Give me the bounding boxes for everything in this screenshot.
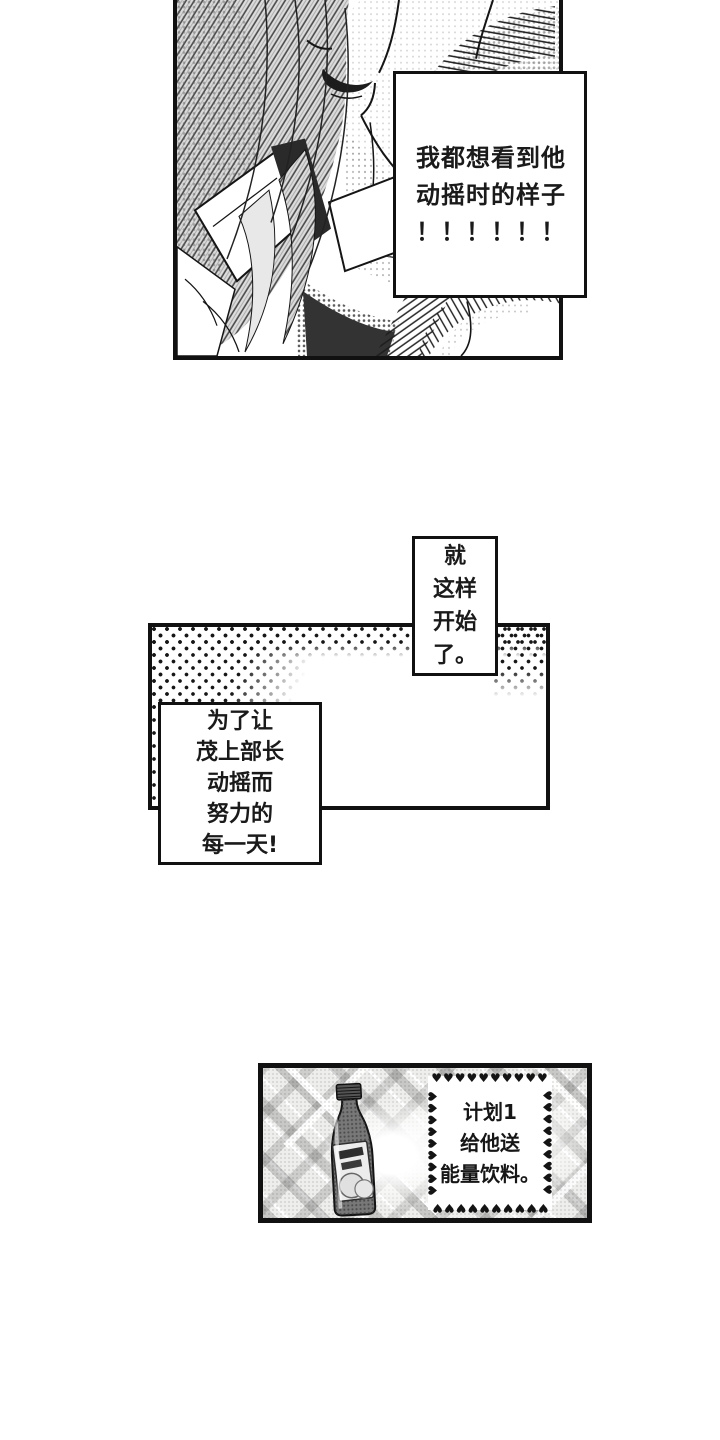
bottle-illustration [315, 1080, 388, 1223]
thought-line: 动摇时的样子 [416, 177, 584, 214]
thought-box: 我都想看到他 动摇时的样子 ！！！！！！ [393, 71, 587, 298]
plan-caption-text: 计划1 给他送 能量饮料。 [428, 1076, 552, 1210]
panel-3-plan: ♥♥♥♥♥♥♥♥♥♥ ♥♥♥♥♥♥♥♥♥♥ ♥♥♥♥♥♥♥♥♥ ♥♥♥♥♥♥♥♥… [258, 1063, 592, 1223]
plan-line: 计划1 [428, 1097, 552, 1128]
comic-page: 我都想看到他 动摇时的样子 ！！！！！！ 就 这样 开始 了。 为了让 茂上部长… [0, 0, 720, 1440]
thought-line: ！！！！！！ [416, 214, 584, 251]
plan-line: 能量饮料。 [428, 1159, 552, 1190]
thought-line: 我都想看到他 [416, 140, 584, 177]
halftone-dots-right [494, 627, 546, 697]
plan-caption-box: ♥♥♥♥♥♥♥♥♥♥ ♥♥♥♥♥♥♥♥♥♥ ♥♥♥♥♥♥♥♥♥ ♥♥♥♥♥♥♥♥… [428, 1076, 552, 1210]
caption-box-vertical: 就 这样 开始 了。 [412, 536, 498, 676]
caption-line: 动摇而 [161, 768, 319, 799]
plan-line: 给他送 [428, 1128, 552, 1159]
caption-line: 开始 [415, 606, 495, 639]
caption-line: 这样 [415, 573, 495, 606]
caption-line: 就 [415, 540, 495, 573]
caption-line: 茂上部长 [161, 737, 319, 768]
caption-box-effort: 为了让 茂上部长 动摇而 努力的 每一天! [158, 702, 322, 865]
caption-line: 为了让 [161, 706, 319, 737]
caption-line: 努力的 [161, 799, 319, 830]
caption-line: 每一天! [161, 830, 319, 861]
energy-drink-bottle-icon [315, 1080, 388, 1223]
caption-line: 了。 [415, 639, 495, 672]
